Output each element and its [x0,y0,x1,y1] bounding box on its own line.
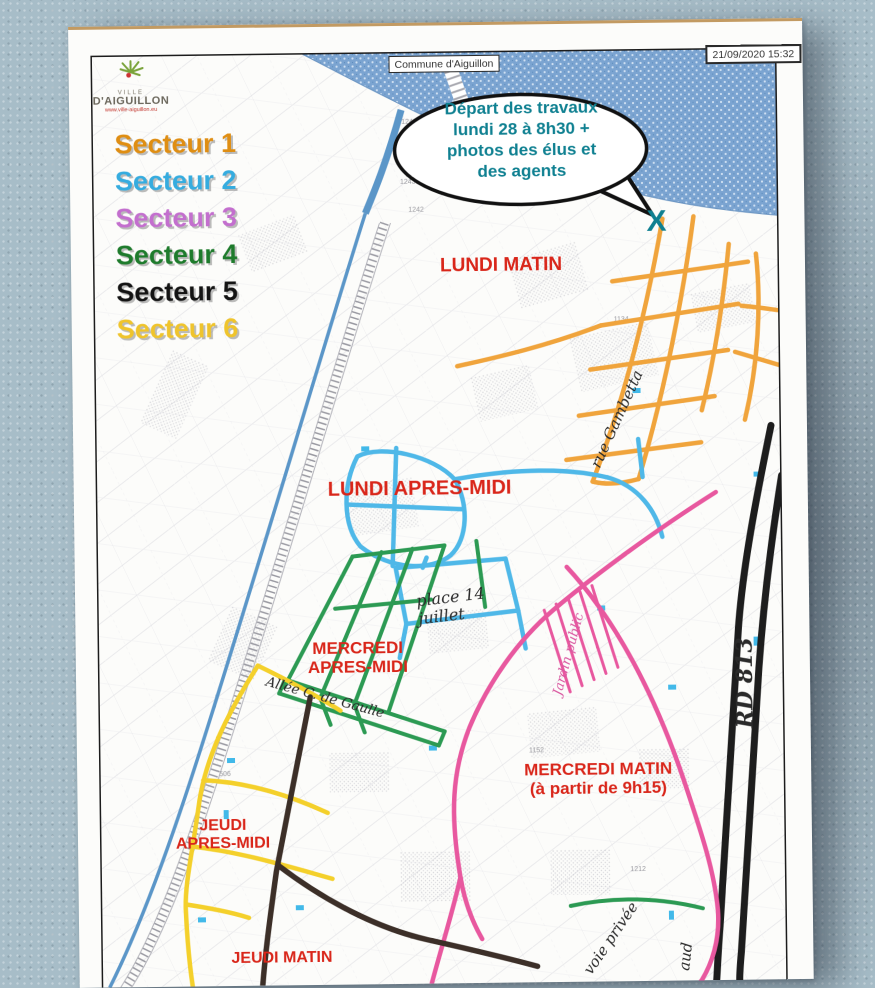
label-mercredi-apres-midi: MERCREDI APRES-MIDI [288,638,428,678]
scanned-map-page: 1246 1244 1243 1242 1134 1152 506 1212 [68,18,814,988]
label-mercredi-matin-line1: MERCREDI MATIN [508,758,688,779]
sector-legend: Secteur 1 Secteur 2 Secteur 3 Secteur 4 … [114,125,238,348]
logo-starburst-icon [112,59,148,85]
town-logo: VILLE D'AIGUILLON www.ville-aiguillon.eu [80,59,181,115]
legend-secteur-1: Secteur 1 [114,125,236,163]
legend-secteur-4: Secteur 4 [116,236,238,274]
svg-text:1152: 1152 [529,747,544,754]
handwriting-fragment: aud [675,941,696,971]
legend-secteur-5: Secteur 5 [116,273,238,311]
desk-background: { "window": {"width": 875, "height": 976… [0,0,875,976]
handwriting-rd813: RD 813 [731,628,758,738]
svg-text:506: 506 [219,771,231,778]
label-jeudi-apm-line2: APRES-MIDI [153,834,293,854]
legend-secteur-2: Secteur 2 [115,162,237,200]
legend-secteur-3: Secteur 3 [115,199,237,237]
label-lundi-apres-midi: LUNDI APRES-MIDI [328,477,512,502]
speech-bubble-text: Départ des travaux lundi 28 à 8h30 + pho… [410,96,633,183]
bubble-line-1: Départ des travaux [410,96,632,120]
label-mercredi-matin: MERCREDI MATIN (à partir de 9h15) [508,758,688,798]
bubble-line-3: photos des élus et [410,138,632,162]
label-jeudi-apres-midi: JEUDI APRES-MIDI [153,816,293,854]
label-mercredi-apm-line2: APRES-MIDI [288,657,428,678]
bubble-line-4: des agents [411,159,633,183]
label-mercredi-matin-line2: (à partir de 9h15) [508,777,688,798]
label-lundi-matin: LUNDI MATIN [440,254,562,277]
start-point-x-marker: X [646,205,666,239]
label-jeudi-matin: JEUDI MATIN [231,949,332,968]
bubble-line-2: lundi 28 à 8h30 + [410,117,632,141]
label-mercredi-apm-line1: MERCREDI [288,638,428,659]
commune-title-box: Commune d'Aiguillon [388,55,499,73]
legend-secteur-6: Secteur 6 [117,310,239,348]
svg-text:1242: 1242 [408,207,424,214]
logo-url-text: www.ville-aiguillon.eu [81,107,181,114]
timestamp-box: 21/09/2020 15:32 [705,44,801,64]
label-jeudi-apm-line1: JEUDI [153,816,293,836]
svg-text:1212: 1212 [630,866,646,873]
